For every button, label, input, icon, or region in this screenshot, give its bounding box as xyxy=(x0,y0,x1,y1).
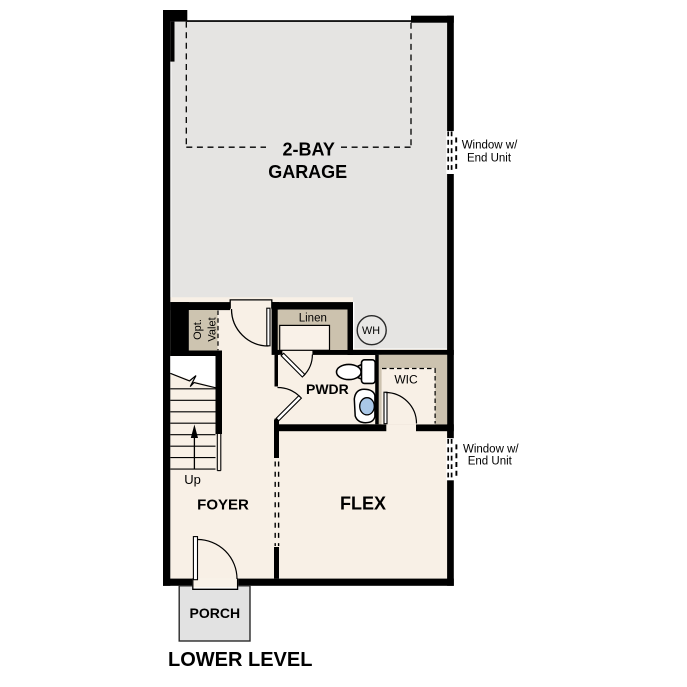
svg-text:End Unit: End Unit xyxy=(467,153,512,165)
svg-text:Valet: Valet xyxy=(207,317,219,341)
svg-text:Linen: Linen xyxy=(299,313,327,325)
svg-text:PORCH: PORCH xyxy=(190,605,241,621)
svg-text:PWDR: PWDR xyxy=(306,381,349,397)
svg-text:2-BAY: 2-BAY xyxy=(283,140,335,160)
svg-text:WH: WH xyxy=(362,325,380,337)
svg-text:Window w/: Window w/ xyxy=(463,444,519,456)
svg-text:LOWER LEVEL: LOWER LEVEL xyxy=(168,649,312,671)
svg-text:FLEX: FLEX xyxy=(340,493,386,513)
svg-text:GARAGE: GARAGE xyxy=(268,162,347,182)
svg-text:End Unit: End Unit xyxy=(468,456,513,468)
svg-text:Opt.: Opt. xyxy=(192,319,204,340)
svg-text:FOYER: FOYER xyxy=(197,497,249,514)
svg-text:WIC: WIC xyxy=(394,373,418,387)
svg-text:Window w/: Window w/ xyxy=(462,140,518,152)
svg-text:Up: Up xyxy=(184,472,201,487)
